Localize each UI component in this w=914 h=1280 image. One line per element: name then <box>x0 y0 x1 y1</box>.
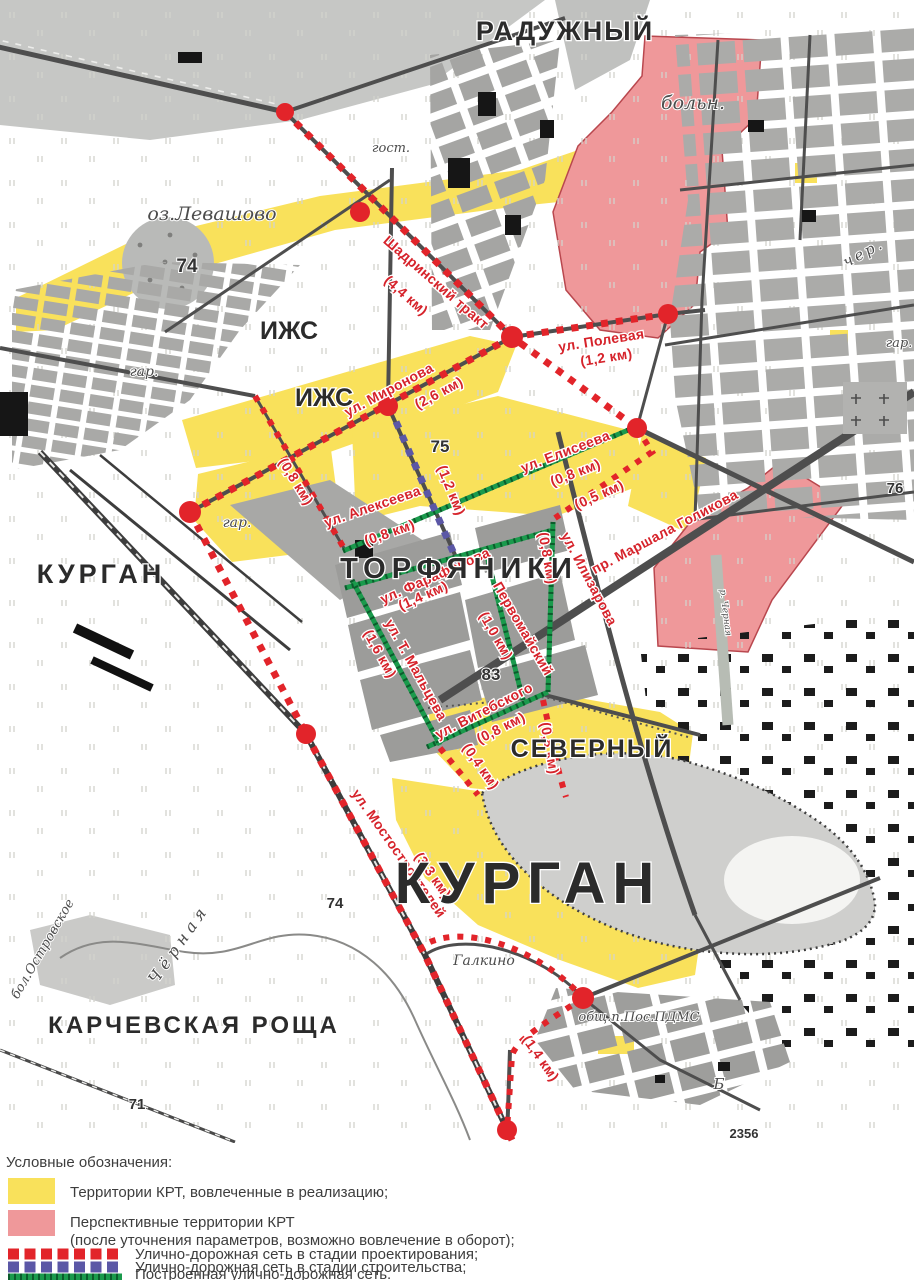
place-kurgan-mound: КУРГАН <box>395 851 662 916</box>
legend-swatch-krt-active <box>8 1178 55 1204</box>
legend-swatch-krt-prospective <box>8 1210 55 1236</box>
place-b-mark: Б <box>712 1075 724 1093</box>
place-hotel: гост. <box>372 141 410 156</box>
place-garage-1: гар. <box>130 364 159 380</box>
place-izhs-1: ИЖС <box>260 317 318 345</box>
legend: Условные обозначения: Территории КРТ, во… <box>0 1143 914 1280</box>
place-garage-3: гар. <box>886 336 913 351</box>
place-galkino: Галкино <box>452 953 515 969</box>
number-76: 76 <box>887 480 904 497</box>
place-torfyaniki: ТОРФЯНИКИ <box>340 553 578 585</box>
place-lake-levashovo: оз.Левашово <box>147 203 276 225</box>
krt-map-page: Шадринский тракт (4,4 км) ул. Полевая (1… <box>0 0 914 1280</box>
legend-title: Условные обозначения: <box>6 1154 172 1171</box>
place-kurgan-city: КУРГАН <box>37 559 166 589</box>
place-izhs-2: ИЖС <box>295 384 353 412</box>
place-pdms: общ.п.Пос.ПДМС <box>578 1010 699 1025</box>
number-74b: 74 <box>327 895 344 912</box>
place-garage-2: гар. <box>223 515 252 531</box>
legend-label-krt-prospective-line1: Перспективные территории КРТ <box>70 1214 295 1231</box>
number-71: 71 <box>129 1096 146 1113</box>
number-74: 74 <box>176 256 198 277</box>
place-raduzhny: РАДУЖНЫЙ <box>476 15 654 46</box>
number-75: 75 <box>431 437 450 456</box>
kurgan-krt-map: Шадринский тракт (4,4 км) ул. Полевая (1… <box>0 0 914 1280</box>
number-2356: 2356 <box>730 1126 759 1141</box>
legend-label-krt-active: Территории КРТ, вовлеченные в реализацию… <box>70 1184 388 1201</box>
cemetery-crosses <box>843 382 907 434</box>
legend-label-uds-built: Построенная улично-дорожная сеть. <box>135 1266 391 1280</box>
number-83: 83 <box>482 665 501 684</box>
place-karchevskaya-roshcha: КАРЧЕВСКАЯ РОЩА <box>48 1012 340 1039</box>
place-severny: СЕВЕРНЫЙ <box>511 733 674 763</box>
place-hospital: больн. <box>661 92 725 114</box>
